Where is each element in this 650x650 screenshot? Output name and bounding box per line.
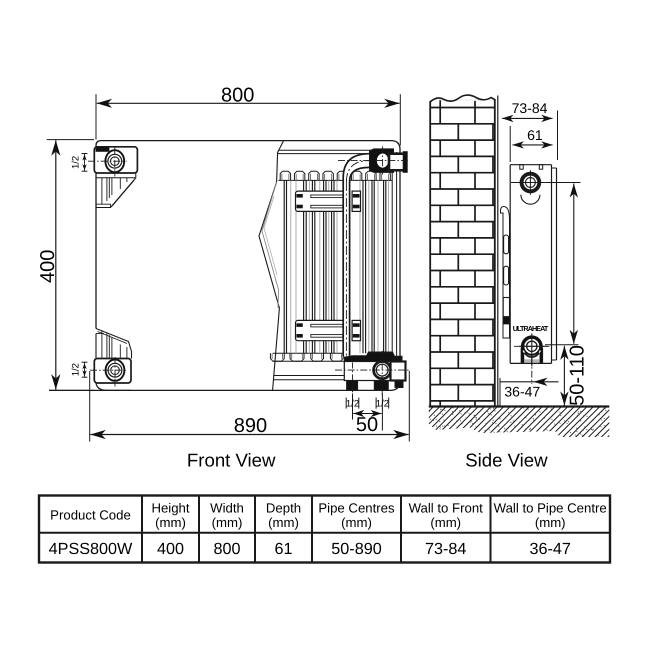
svg-text:(mm): (mm)	[535, 515, 566, 530]
svg-text:(mm): (mm)	[268, 515, 299, 530]
svg-text:Wall to Pipe Centre: Wall to Pipe Centre	[494, 501, 607, 516]
svg-text:1/2: 1/2	[376, 398, 389, 409]
svg-text:36-47: 36-47	[504, 384, 540, 400]
svg-text:400: 400	[37, 250, 59, 283]
svg-text:Front View: Front View	[187, 450, 276, 471]
svg-text:Height: Height	[151, 501, 189, 516]
svg-text:73-84: 73-84	[425, 540, 466, 558]
svg-text:Width: Width	[210, 501, 244, 516]
svg-text:890: 890	[234, 415, 267, 437]
svg-text:1/2: 1/2	[71, 363, 82, 376]
svg-text:Product Code: Product Code	[50, 507, 131, 522]
svg-text:50-110: 50-110	[567, 345, 589, 406]
svg-text:Wall to Front: Wall to Front	[409, 501, 484, 516]
svg-text:(mm): (mm)	[341, 515, 372, 530]
svg-text:61: 61	[527, 127, 543, 143]
svg-text:400: 400	[157, 540, 184, 558]
svg-text:800: 800	[221, 85, 254, 107]
svg-text:(mm): (mm)	[212, 515, 243, 530]
svg-text:50: 50	[356, 414, 378, 436]
svg-text:73-84: 73-84	[512, 100, 548, 116]
svg-text:(mm): (mm)	[155, 515, 186, 530]
svg-text:Depth: Depth	[266, 501, 301, 516]
svg-text:1/2: 1/2	[346, 398, 359, 409]
svg-text:800: 800	[213, 540, 240, 558]
svg-text:61: 61	[274, 540, 292, 558]
svg-text:Side View: Side View	[465, 450, 548, 471]
svg-text:Pipe Centres: Pipe Centres	[318, 501, 395, 516]
svg-text:36-47: 36-47	[529, 540, 570, 558]
svg-text:(mm): (mm)	[430, 515, 461, 530]
svg-text:1/2: 1/2	[71, 156, 82, 169]
svg-text:4PSS800W: 4PSS800W	[49, 540, 133, 558]
svg-text:ULTRAHEAT: ULTRAHEAT	[513, 324, 549, 333]
svg-text:50-890: 50-890	[331, 540, 381, 558]
